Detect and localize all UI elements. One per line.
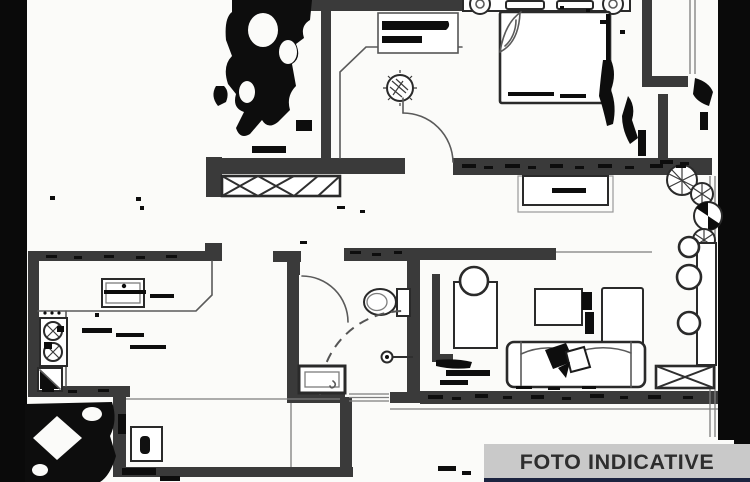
streak-balcony-top — [693, 78, 713, 106]
wall-mid-left — [206, 158, 405, 174]
wall-bedroom-right — [642, 0, 652, 80]
streak-living-1 — [436, 359, 472, 368]
knob-3 — [57, 311, 60, 314]
streak-living-2 — [446, 370, 490, 376]
pillow-left — [506, 1, 544, 9]
sideboard — [602, 288, 643, 346]
coffee-table — [535, 289, 582, 325]
radiator-bottom — [656, 366, 714, 388]
bathroom — [299, 276, 413, 401]
wall-terrace-right — [340, 397, 352, 477]
terrace-window-dark — [140, 436, 150, 454]
washbasin-vanity-icon — [299, 366, 345, 393]
dining-chair-1-icon — [679, 237, 699, 257]
streak-living-3 — [440, 380, 468, 385]
living-room — [432, 267, 645, 387]
knob-1 — [43, 311, 46, 314]
sink-faucet — [122, 284, 126, 288]
wall-living-top — [420, 248, 556, 260]
dresser-outline — [378, 13, 458, 53]
sofa — [507, 342, 645, 387]
blob-bl-satellite — [118, 414, 126, 434]
dresser-smudge-1 — [382, 21, 449, 30]
floorplan-drawing: FOTO INDICATIVE — [0, 0, 750, 482]
cooktop-icon — [40, 311, 67, 366]
entry-hall — [340, 13, 462, 162]
dining-chair-2-icon — [677, 265, 701, 289]
toilet-bowl — [364, 289, 396, 315]
blob-top-hole-2 — [279, 40, 297, 64]
partition-wall — [432, 274, 440, 356]
wall-bath-left — [287, 262, 299, 403]
blob-top-satellite-3 — [252, 146, 286, 153]
closet-smudge — [552, 188, 586, 193]
dresser-smudge-2 — [382, 36, 422, 43]
bedroom-door-arc — [403, 113, 453, 162]
streak-bedroom-3 — [638, 130, 646, 156]
blob-top-hole-3 — [239, 81, 255, 103]
drain-inner — [385, 355, 389, 359]
scan-bar-left — [0, 0, 27, 482]
cooktop-smudge-2 — [44, 342, 52, 349]
scan-bar-right — [718, 0, 750, 440]
dining-chair-3-icon — [678, 312, 700, 334]
blanket-edge-smudge-1 — [508, 92, 554, 96]
blob-top-hole-1 — [248, 13, 278, 47]
blanket-edge-smudge-2 — [560, 94, 586, 98]
streak-balcony-2 — [700, 112, 708, 130]
wall-balcony-nib — [642, 76, 688, 87]
blob-bl-hole-2 — [32, 464, 48, 476]
cooktop-smudge-1 — [57, 326, 64, 332]
streak-table-1 — [582, 292, 592, 310]
wall-hall-top — [307, 0, 462, 11]
kitchen — [38, 261, 212, 391]
bathroom-door-arc — [302, 276, 348, 322]
blob-top-satellite-2 — [296, 120, 312, 131]
balcony-right — [656, 0, 722, 437]
ceiling-fixture-icon — [383, 70, 417, 106]
streak-bedroom-2 — [622, 96, 638, 144]
photo-banner: FOTO INDICATIVE — [484, 444, 750, 482]
toilet-icon — [364, 289, 410, 316]
threshold-stripes — [349, 394, 389, 401]
scan-artifacts — [25, 0, 713, 482]
desk-chair-icon — [460, 267, 488, 295]
blob-bl-hole-1 — [82, 407, 102, 421]
foto-indicative-label: FOTO INDICATIVE — [520, 450, 715, 474]
hall-inner-outline — [340, 47, 462, 158]
wall-kitchen-bump — [205, 243, 222, 261]
walls — [28, 0, 718, 477]
wall-balcony-upper — [658, 94, 668, 158]
terrace-left — [131, 427, 162, 461]
radiator-top — [222, 176, 340, 196]
vanity-outer — [299, 366, 345, 393]
bed-body — [500, 12, 610, 103]
corner-cabinet-icon — [38, 368, 62, 391]
hall-dresser — [378, 13, 458, 53]
knob-2 — [50, 311, 53, 314]
floorplan-page: FOTO INDICATIVE — [0, 0, 750, 482]
dining-table — [697, 243, 716, 365]
banner-footer-strip — [484, 478, 750, 482]
streak-table-2 — [585, 312, 594, 334]
bedroom-closet — [518, 176, 613, 212]
bedside-lamp-left-icon — [470, 0, 490, 14]
wall-hall-left — [321, 11, 331, 158]
wall-bath-bottom-right — [390, 392, 420, 403]
wall-bath-right — [407, 248, 420, 403]
blob-top-satellite-1 — [213, 86, 227, 106]
